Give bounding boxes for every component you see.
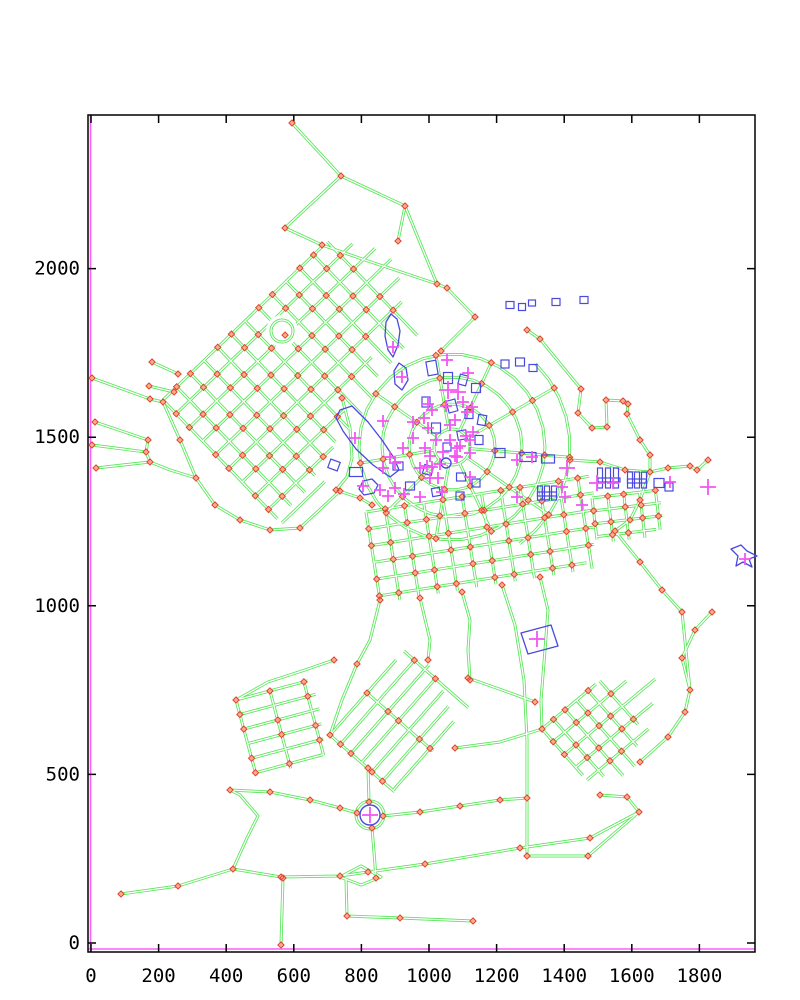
x-axis-tick-label: 0 bbox=[85, 965, 96, 987]
building-outline bbox=[501, 360, 509, 368]
x-axis-tick-label: 1200 bbox=[474, 965, 520, 987]
x-axis-tick-label: 400 bbox=[209, 965, 243, 987]
roundabout-holes-layer bbox=[266, 315, 298, 347]
building-outline bbox=[475, 436, 483, 445]
x-axis-tick-label: 800 bbox=[344, 965, 378, 987]
x-axis-tick-label: 200 bbox=[141, 965, 175, 987]
building-outline bbox=[426, 360, 438, 376]
building-outline bbox=[635, 472, 640, 488]
building-outline bbox=[731, 545, 757, 567]
building-outline bbox=[628, 479, 647, 483]
plot-page: 0200400600800100012001400160018000500100… bbox=[0, 0, 800, 1000]
y-axis-tick-label: 2000 bbox=[34, 258, 80, 280]
x-axis-tick-label: 600 bbox=[277, 965, 311, 987]
building-outline bbox=[506, 302, 514, 309]
building-outline bbox=[654, 479, 664, 488]
building-outline bbox=[519, 304, 526, 311]
x-axis-tick-label: 1000 bbox=[406, 965, 452, 987]
building-outline bbox=[328, 459, 340, 471]
y-axis-tick-label: 1500 bbox=[34, 426, 80, 448]
x-axis-tick-label: 1600 bbox=[609, 965, 655, 987]
building-outline bbox=[516, 358, 525, 366]
y-axis-tick-label: 1000 bbox=[34, 595, 80, 617]
building-outline bbox=[458, 374, 468, 386]
building-outline bbox=[529, 300, 536, 306]
y-axis-tick-label: 0 bbox=[69, 932, 80, 954]
y-axis-tick-label: 500 bbox=[46, 763, 80, 785]
x-axis-tick-label: 1800 bbox=[677, 965, 723, 987]
building-outline bbox=[545, 486, 550, 500]
building-outline bbox=[580, 297, 588, 304]
building-outline bbox=[665, 483, 673, 491]
building-outline bbox=[628, 472, 633, 488]
road-network-map-canvas: 0200400600800100012001400160018000500100… bbox=[0, 0, 800, 1000]
building-outline bbox=[598, 478, 620, 482]
x-axis-tick-label: 1400 bbox=[541, 965, 587, 987]
building-outline bbox=[552, 299, 560, 306]
